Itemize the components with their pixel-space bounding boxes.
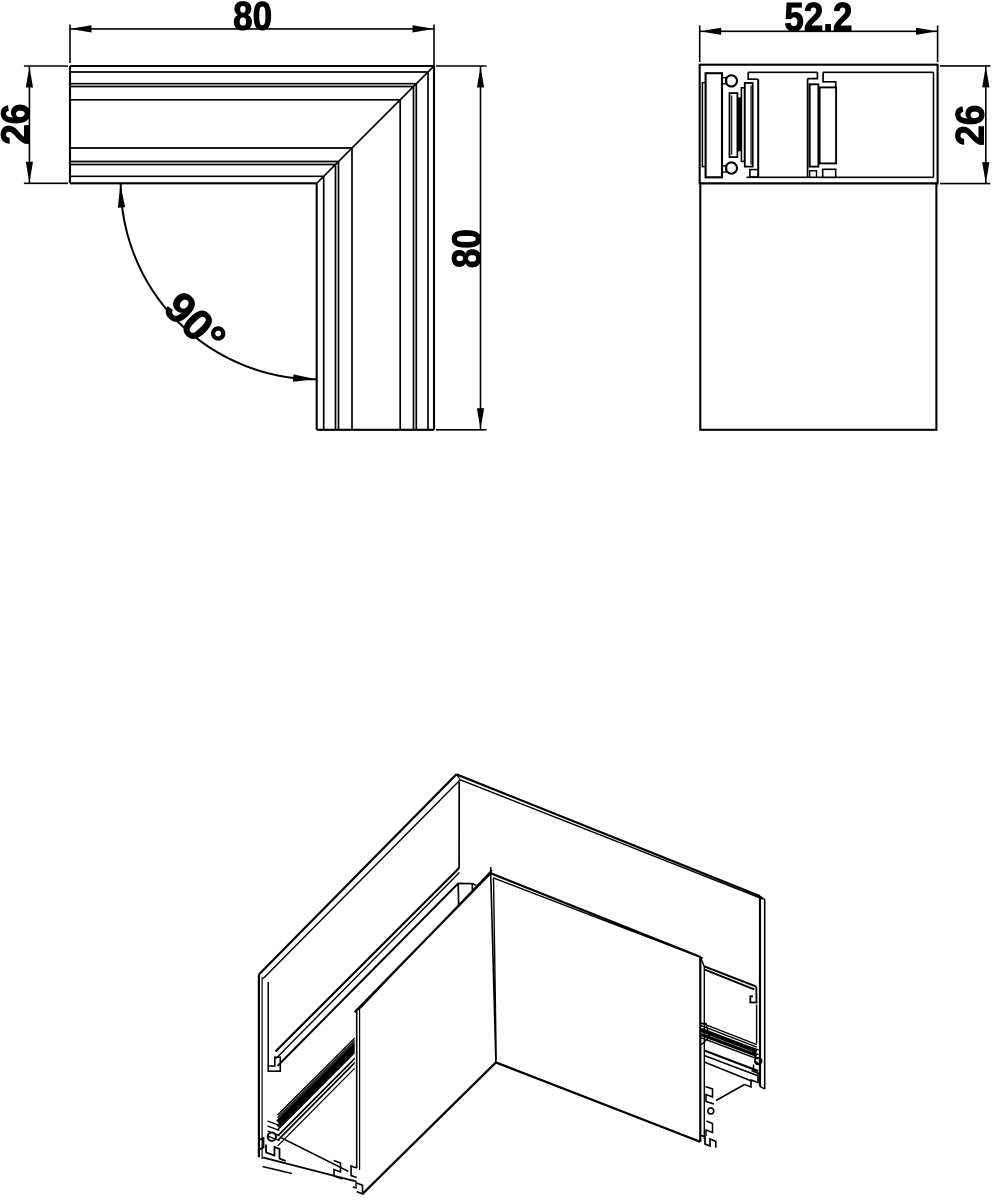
- svg-text:52.2: 52.2: [784, 0, 852, 40]
- svg-text:26: 26: [948, 105, 992, 146]
- svg-text:26: 26: [0, 104, 38, 145]
- svg-text:80: 80: [233, 0, 272, 38]
- svg-text:80: 80: [445, 229, 489, 268]
